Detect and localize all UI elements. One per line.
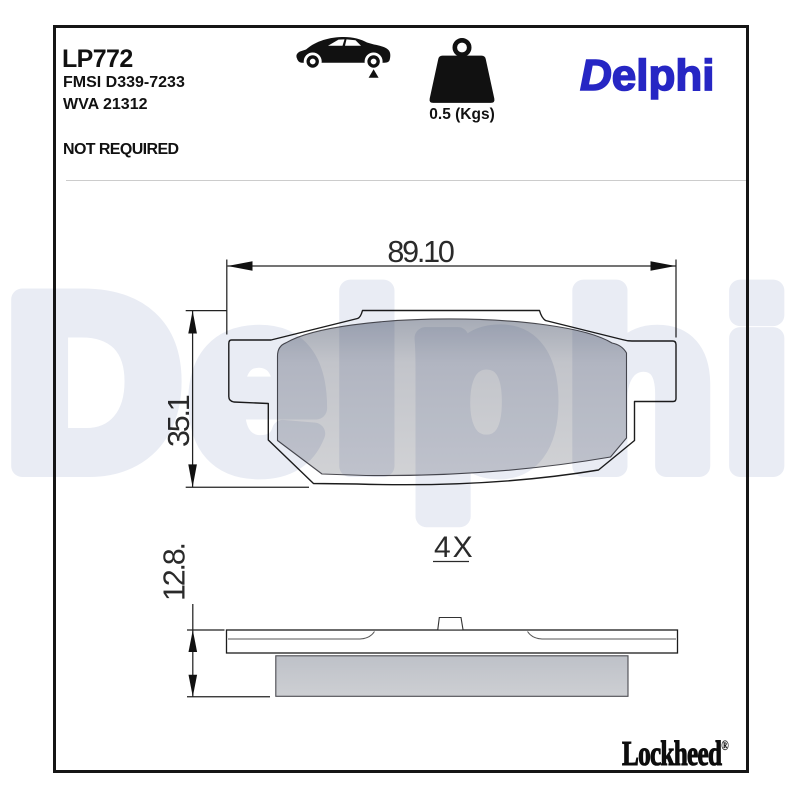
svg-text:Delphi: Delphi	[6, 248, 799, 518]
